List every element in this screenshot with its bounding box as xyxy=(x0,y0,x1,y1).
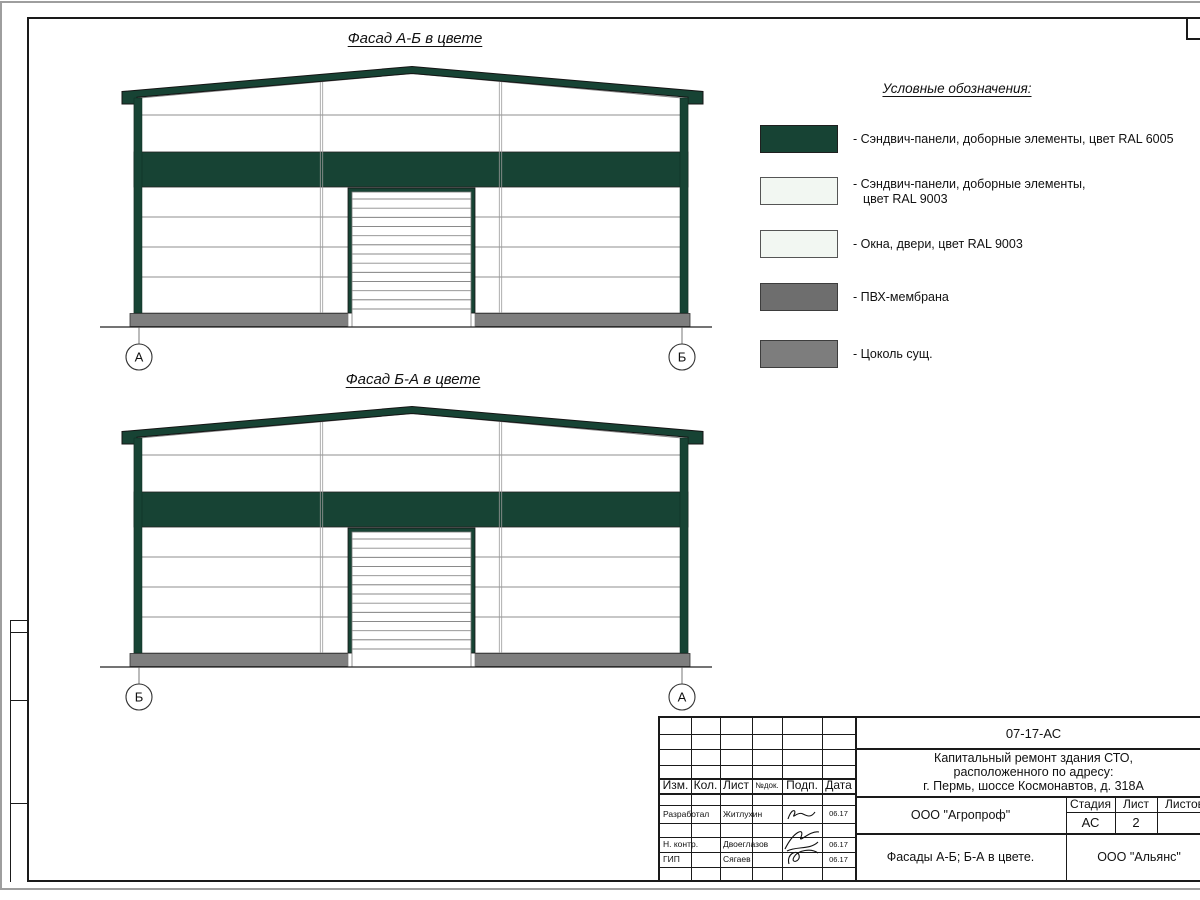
legend-label: - Сэндвич-панели, доборные элементы, цве… xyxy=(853,177,1198,206)
col-header-podp: Подп. xyxy=(782,778,822,793)
col-header-kol: Кол. xyxy=(691,778,720,793)
col-header-izm: Изм. xyxy=(660,778,691,793)
signature-stroke xyxy=(788,811,815,819)
page-edge-bottom xyxy=(0,888,1200,890)
sheets-label: Листов xyxy=(1157,797,1200,812)
gate-leaf xyxy=(352,192,471,327)
signature-stroke xyxy=(785,832,819,851)
row-name: Сягаев xyxy=(723,852,781,867)
accent-band xyxy=(134,152,688,187)
legend-label: - Окна, двери, цвет RAL 9003 xyxy=(853,230,1198,258)
legend-swatch-ral9003 xyxy=(760,177,838,205)
plinth-right xyxy=(475,314,690,327)
project-title-line2: расположенного по адресу: xyxy=(855,765,1200,779)
legend-label: - Сэндвич-панели, доборные элементы, цве… xyxy=(853,125,1198,153)
drawing-sheet: А Б Фасад А-Б в цвете xyxy=(0,0,1200,900)
legend-swatch-membrane xyxy=(760,283,838,311)
col-header-ndoc: №док. xyxy=(752,778,782,793)
row-date: 06.17 xyxy=(823,852,854,867)
legend-text: - Сэндвич-панели, доборные элементы, xyxy=(853,177,1198,192)
sheet-label: Лист xyxy=(1115,797,1157,812)
plinth-right xyxy=(475,654,690,667)
legend-swatch-basement xyxy=(760,340,838,368)
row-role: ГИП xyxy=(663,852,721,867)
side-strip-divider xyxy=(10,632,27,633)
stage-value: АС xyxy=(1066,813,1115,833)
axis-label-left: А xyxy=(135,350,144,365)
legend-text: цвет RAL 9003 xyxy=(863,192,1198,207)
axis-label-right: А xyxy=(678,690,687,705)
page-edge-left xyxy=(0,1,2,889)
gate-leaf xyxy=(352,532,471,667)
side-strip-line xyxy=(10,620,11,882)
legend-title: Условные обозначения: xyxy=(852,81,1062,96)
sheet-value: 2 xyxy=(1115,813,1157,833)
top-right-doc-box xyxy=(1186,17,1200,40)
axis-label-left: Б xyxy=(135,690,144,705)
corner-column-left xyxy=(134,438,142,653)
legend-text: - Сэндвич-панели, доборные элементы, цве… xyxy=(853,132,1198,147)
row-role: Разработал xyxy=(663,805,721,823)
legend-swatch-windows xyxy=(760,230,838,258)
page-edge-top xyxy=(0,1,1200,3)
col-header-data: Дата xyxy=(822,778,855,793)
legend-label: - Цоколь сущ. xyxy=(853,340,1198,368)
facade-ab-title: Фасад А-Б в цвете xyxy=(320,30,510,47)
row-date: 06.17 xyxy=(823,837,854,852)
facade-ba-title: Фасад Б-А в цвете xyxy=(318,371,508,388)
col-header-list: Лист xyxy=(720,778,752,793)
accent-band xyxy=(134,492,688,527)
signatures xyxy=(782,803,822,867)
side-strip-divider xyxy=(10,700,27,701)
row-role: Н. контр. xyxy=(663,837,721,852)
signature-stroke xyxy=(788,850,818,864)
legend-text: - Окна, двери, цвет RAL 9003 xyxy=(853,237,1198,252)
project-title-line1: Капитальный ремонт здания СТО, xyxy=(855,751,1200,765)
legend-label: - ПВХ-мембрана xyxy=(853,283,1198,311)
legend-swatch-ral6005 xyxy=(760,125,838,153)
corner-column-right xyxy=(680,98,688,313)
legend-text: - Цоколь сущ. xyxy=(853,347,1198,362)
org-name: ООО "Альянс" xyxy=(1066,834,1200,880)
side-strip-divider xyxy=(10,803,27,804)
corner-column-left xyxy=(134,98,142,313)
side-strip-divider xyxy=(10,620,27,621)
sheet-title: Фасады А-Б; Б-А в цвете. xyxy=(855,834,1066,880)
facade-ba-drawing: Б А xyxy=(90,368,730,720)
axis-label-right: Б xyxy=(678,350,687,365)
plinth-left xyxy=(130,314,348,327)
row-name: Житлухин xyxy=(723,805,781,823)
project-title-line3: г. Пермь, шоссе Космонавтов, д. 318А xyxy=(855,779,1200,793)
stage-label: Стадия xyxy=(1066,797,1115,812)
row-name: Двоеглазов xyxy=(723,837,781,852)
customer-name: ООО "Агропроф" xyxy=(855,797,1066,833)
doc-number: 07-17-АС xyxy=(855,724,1200,744)
plinth-left xyxy=(130,654,348,667)
legend-text: - ПВХ-мембрана xyxy=(853,290,1198,305)
facade-ab-drawing: А Б xyxy=(90,28,730,380)
corner-column-right xyxy=(680,438,688,653)
title-block: Изм. Кол. Лист №док. Подп. Дата Разработ… xyxy=(658,716,1200,882)
row-date: 06.17 xyxy=(823,805,854,823)
